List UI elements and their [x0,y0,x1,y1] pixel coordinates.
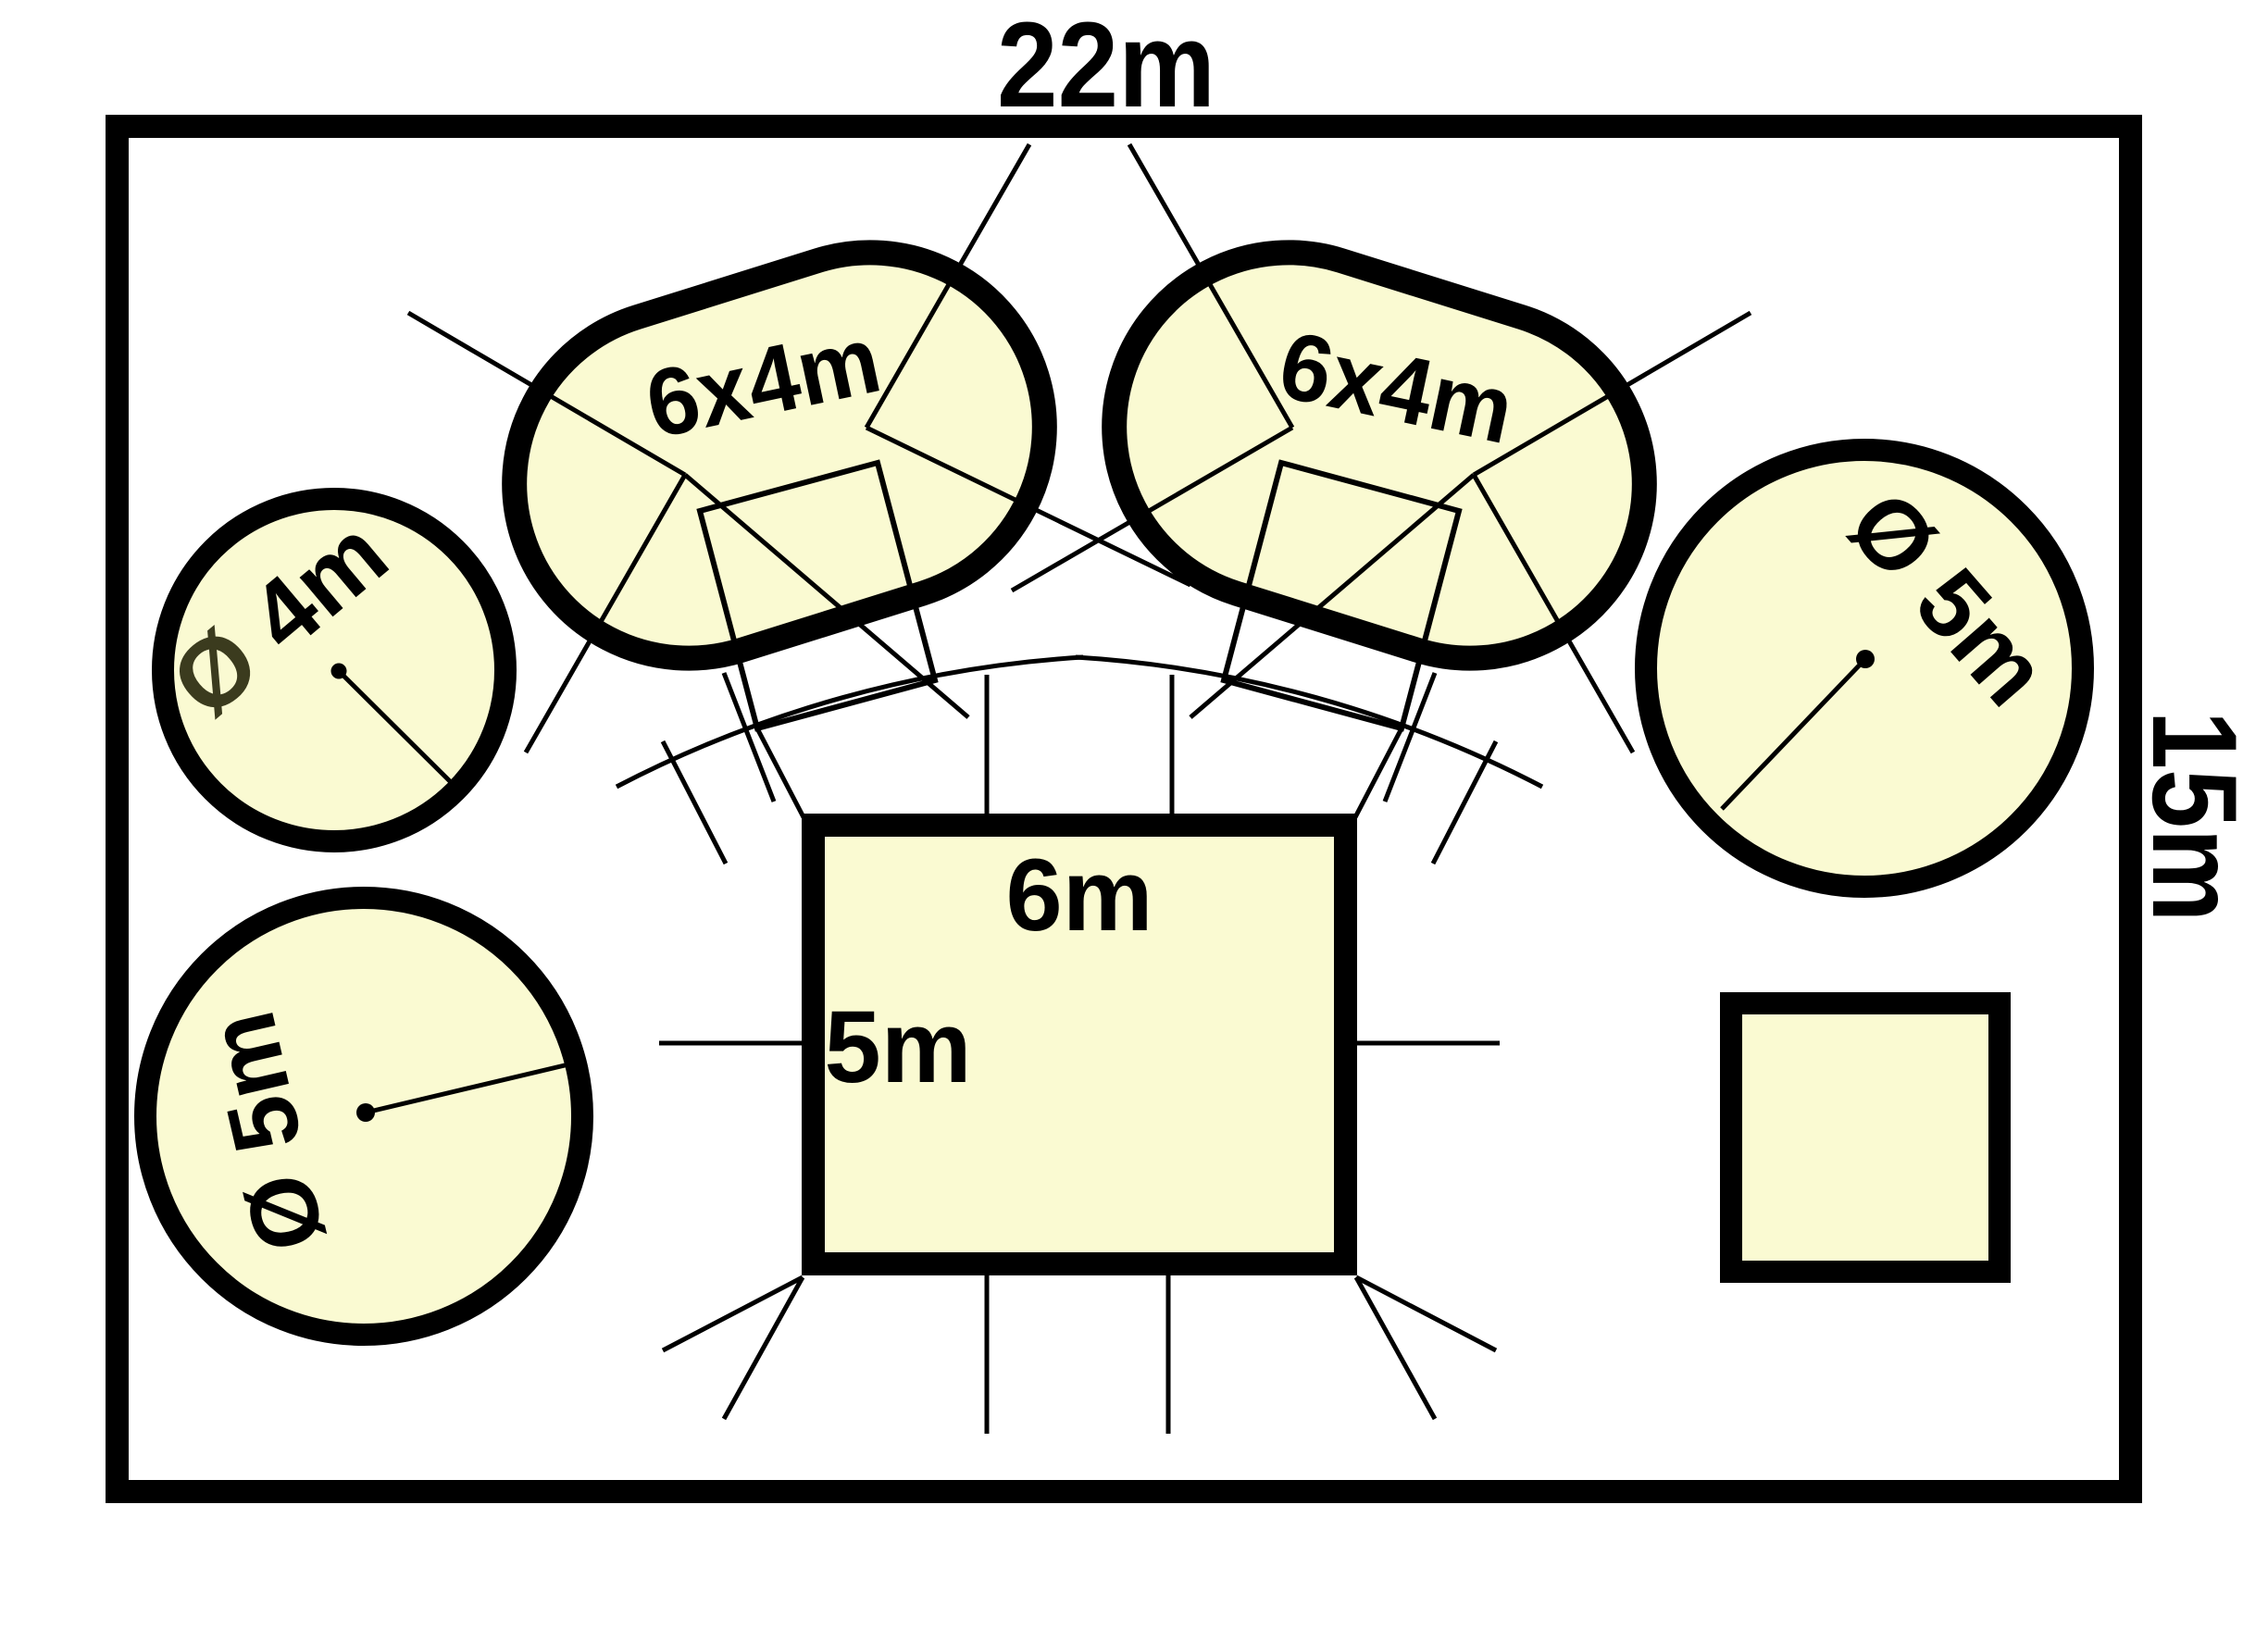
svg-text:6m: 6m [1006,839,1153,952]
svg-text:5m: 5m [825,990,972,1104]
svg-text:22m: 22m [997,0,1215,132]
svg-text:15m: 15m [2127,711,2262,923]
